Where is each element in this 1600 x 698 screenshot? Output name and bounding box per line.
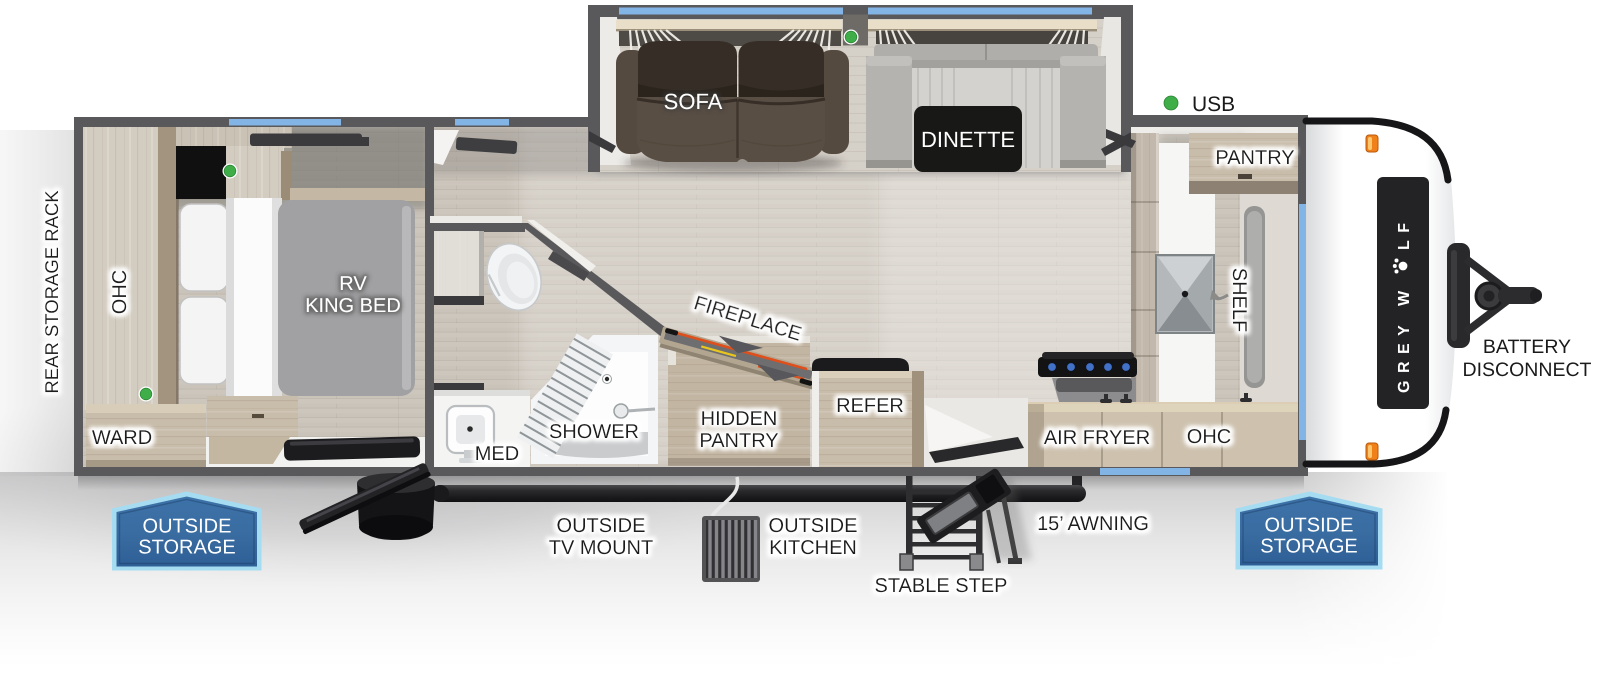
svg-text:PANTRY: PANTRY <box>699 430 778 452</box>
svg-text:OUTSIDE: OUTSIDE <box>769 515 858 537</box>
svg-text:OUTSIDE: OUTSIDE <box>557 515 646 537</box>
svg-text:RV: RV <box>339 273 367 295</box>
svg-text:SHOWER: SHOWER <box>549 421 639 443</box>
svg-text:SOFA: SOFA <box>664 89 723 114</box>
svg-text:TV MOUNT: TV MOUNT <box>549 537 653 559</box>
svg-text:DISCONNECT: DISCONNECT <box>1463 359 1592 381</box>
svg-text:PANTRY: PANTRY <box>1215 147 1294 169</box>
svg-text:15’ AWNING: 15’ AWNING <box>1037 513 1149 535</box>
svg-text:LF: LF <box>1396 215 1413 250</box>
svg-text:SHELF: SHELF <box>1228 268 1250 332</box>
svg-text:MED: MED <box>475 443 519 465</box>
svg-text:WARD: WARD <box>92 427 152 449</box>
svg-text:REAR STORAGE RACK: REAR STORAGE RACK <box>41 190 62 394</box>
svg-text:KING BED: KING BED <box>305 295 401 317</box>
svg-text:STABLE STEP: STABLE STEP <box>874 575 1007 597</box>
svg-text:DINETTE: DINETTE <box>921 127 1015 152</box>
svg-text:REFER: REFER <box>836 395 904 417</box>
svg-text:GREY W: GREY W <box>1396 283 1413 393</box>
svg-text:STORAGE: STORAGE <box>1260 536 1357 558</box>
svg-text:OHC: OHC <box>1187 426 1231 448</box>
svg-text:OUTSIDE: OUTSIDE <box>1265 515 1354 537</box>
svg-text:USB: USB <box>1192 93 1235 116</box>
svg-text:OHC: OHC <box>109 270 131 314</box>
svg-text:OUTSIDE: OUTSIDE <box>143 516 232 538</box>
svg-text:HIDDEN: HIDDEN <box>701 408 778 430</box>
svg-text:STORAGE: STORAGE <box>138 537 235 559</box>
svg-text:KITCHEN: KITCHEN <box>769 537 857 559</box>
svg-text:AIR FRYER: AIR FRYER <box>1044 427 1150 449</box>
svg-text:BATTERY: BATTERY <box>1483 336 1571 358</box>
